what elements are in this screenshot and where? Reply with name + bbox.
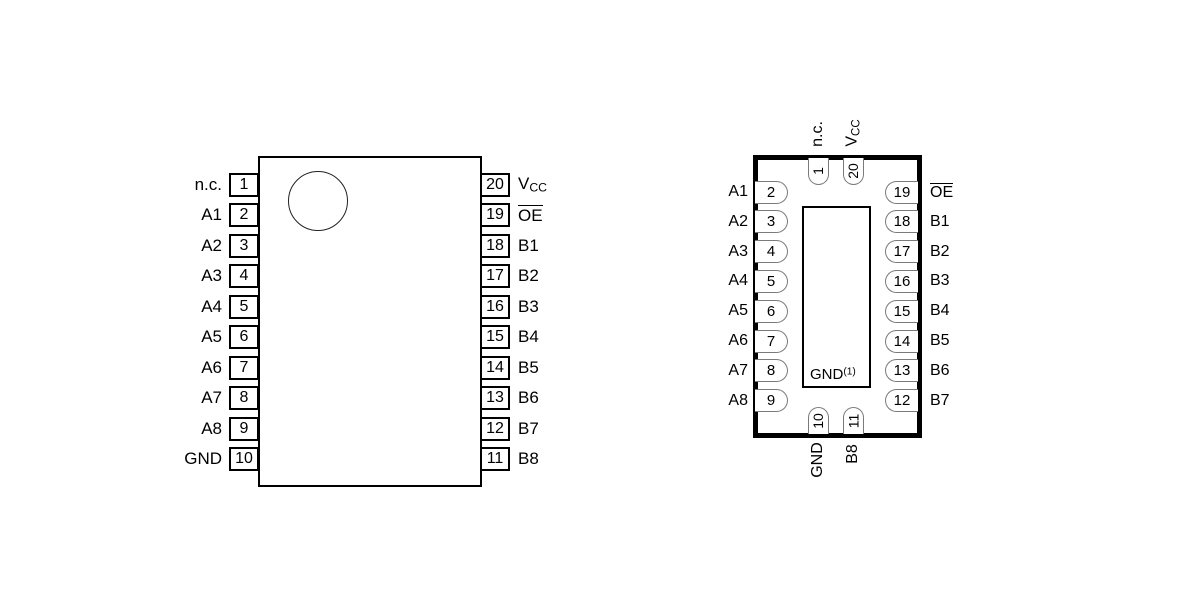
- pin-name-label: B6: [518, 386, 668, 410]
- pin-number-box: 5: [229, 295, 259, 319]
- pin-name-text: B4: [930, 302, 950, 320]
- pin-name-label: A8: [96, 417, 222, 441]
- pin-name-text: B8: [518, 449, 539, 469]
- pin-name-label: B5: [930, 329, 1030, 353]
- pin-number-box: 6: [229, 325, 259, 349]
- pin-number-box: 12: [480, 417, 510, 441]
- pin-name-label: B2: [518, 264, 668, 288]
- pin-number-box: 16: [480, 295, 510, 319]
- pin-number-box: 3: [229, 234, 259, 258]
- pin-name-text: GND: [809, 442, 826, 478]
- pin-name-text: GND(1): [810, 366, 856, 383]
- pin-name-text: A2: [201, 236, 222, 256]
- pin-name-label: B8: [518, 447, 668, 471]
- pin-name-label: OE: [518, 203, 668, 227]
- pin-name-label: A3: [96, 264, 222, 288]
- pin-name-text: A1: [728, 183, 748, 201]
- pin-number-box: 4: [229, 264, 259, 288]
- pin-name-text: A7: [201, 388, 222, 408]
- pin-stadium: 2: [755, 181, 788, 204]
- pin-number-box: 17: [480, 264, 510, 288]
- pin-name-label: B4: [930, 299, 1030, 323]
- pin-name-text: B5: [518, 358, 539, 378]
- pin-name-label: B4: [518, 325, 668, 349]
- pin-stadium: 17: [885, 240, 918, 263]
- pin-name-label: A5: [648, 299, 748, 323]
- pin-stadium: 10: [808, 407, 829, 434]
- pin-name-label: GND: [809, 442, 827, 478]
- pin-number-text: 10: [810, 413, 826, 429]
- pin-number-text: 20: [845, 163, 861, 179]
- pin-name-text: A2: [728, 213, 748, 231]
- pin-name-label: B6: [930, 359, 1030, 383]
- dip-package-body: [258, 156, 482, 487]
- pin-stadium: 15: [885, 300, 918, 323]
- pin-number-box: 18: [480, 234, 510, 258]
- pin-name-label: n.c.: [809, 121, 827, 147]
- pin-name-text: A5: [201, 327, 222, 347]
- pin-name-label: A7: [96, 386, 222, 410]
- pin-name-label: A8: [648, 389, 748, 413]
- pin-name-text: B6: [930, 362, 950, 380]
- pin-stadium: 7: [755, 330, 788, 353]
- pin-name-text: A3: [201, 266, 222, 286]
- pin-stadium: 9: [755, 389, 788, 412]
- pin-stadium: 4: [755, 240, 788, 263]
- pin-stadium: 8: [755, 359, 788, 382]
- pin-number-text: 1: [810, 167, 826, 175]
- pin-number-box: 8: [229, 386, 259, 410]
- pin-stadium: 5: [755, 270, 788, 293]
- pin-number-box: 20: [480, 173, 510, 197]
- pin-name-label: A6: [96, 356, 222, 380]
- pin-number-box: 13: [480, 386, 510, 410]
- pin-name-label: A6: [648, 329, 748, 353]
- pin-name-text: B3: [518, 297, 539, 317]
- pin-name-label: n.c.: [96, 173, 222, 197]
- pin-name-label: A1: [648, 180, 748, 204]
- pin-stadium: 14: [885, 330, 918, 353]
- pin-number-box: 10: [229, 447, 259, 471]
- pin-name-label: B1: [518, 234, 668, 258]
- pin-name-text: A7: [728, 362, 748, 380]
- pin-name-text: OE: [518, 205, 543, 226]
- pin-name-label: VCC: [844, 119, 863, 146]
- pin-name-text: B1: [930, 213, 950, 231]
- pin-name-text: VCC: [518, 174, 547, 195]
- pin-name-text: A8: [728, 392, 748, 410]
- pin-name-label: OE: [930, 180, 1030, 204]
- pin-name-label: B5: [518, 356, 668, 380]
- pin-number-box: 7: [229, 356, 259, 380]
- exposed-pad-label: GND(1): [810, 366, 856, 383]
- pin-stadium: 20: [843, 158, 864, 185]
- pin-name-text: B4: [518, 327, 539, 347]
- pin-name-label: B3: [518, 295, 668, 319]
- pin-name-text: A5: [728, 302, 748, 320]
- exposed-pad: GND(1): [802, 206, 871, 388]
- pin-name-text: B7: [518, 419, 539, 439]
- pin-name-label: A4: [648, 269, 748, 293]
- pin-number-box: 19: [480, 203, 510, 227]
- pin-stadium: 12: [885, 389, 918, 412]
- pin-name-label: A4: [96, 295, 222, 319]
- pin-name-text: B6: [518, 388, 539, 408]
- pin-stadium: 19: [885, 181, 918, 204]
- pin-number-box: 2: [229, 203, 259, 227]
- pin-name-label: A3: [648, 240, 748, 264]
- pin-number-box: 11: [480, 447, 510, 471]
- pin-name-text: A1: [201, 205, 222, 225]
- pin-name-label: B8: [844, 444, 862, 464]
- pin-stadium: 18: [885, 210, 918, 233]
- pin-name-text: n.c.: [195, 175, 222, 195]
- pin-name-text: A6: [201, 358, 222, 378]
- pin-name-label: GND: [96, 447, 222, 471]
- pin-name-text: B3: [930, 272, 950, 290]
- pin-name-text: A8: [201, 419, 222, 439]
- pin-name-label: A2: [96, 234, 222, 258]
- pin-name-text: A6: [728, 332, 748, 350]
- pin-name-text: OE: [930, 183, 953, 202]
- pin-name-text: A4: [728, 272, 748, 290]
- pin-name-label: A1: [96, 203, 222, 227]
- pin-name-text: VCC: [844, 119, 861, 146]
- pin-name-text: GND: [184, 449, 222, 469]
- pin-name-text: B7: [930, 392, 950, 410]
- pin-number-box: 15: [480, 325, 510, 349]
- pin-name-label: A7: [648, 359, 748, 383]
- pin-number-box: 9: [229, 417, 259, 441]
- pin-stadium: 3: [755, 210, 788, 233]
- pin-stadium: 13: [885, 359, 918, 382]
- pin-stadium: 6: [755, 300, 788, 323]
- pin-name-text: A4: [201, 297, 222, 317]
- pinout-figure: n.c.1A12A23A34A45A56A67A78A89GND1020VCC1…: [0, 0, 1179, 603]
- pin-name-text: B5: [930, 332, 950, 350]
- pin-name-label: B1: [930, 210, 1030, 234]
- pin1-indicator-circle: [288, 171, 348, 231]
- pin-stadium: 11: [843, 407, 864, 434]
- pin-name-text: B8: [844, 444, 861, 464]
- pin-name-label: B3: [930, 269, 1030, 293]
- pin-stadium: 1: [808, 158, 829, 185]
- pin-name-label: A2: [648, 210, 748, 234]
- pin-stadium: 16: [885, 270, 918, 293]
- pin-name-text: B1: [518, 236, 539, 256]
- pin-name-label: A5: [96, 325, 222, 349]
- pin-number-box: 14: [480, 356, 510, 380]
- pin-name-label: VCC: [518, 173, 668, 197]
- pin-name-label: B7: [518, 417, 668, 441]
- pin-name-text: B2: [518, 266, 539, 286]
- pin-name-text: n.c.: [809, 121, 826, 147]
- pin-name-label: B2: [930, 240, 1030, 264]
- pin-name-label: B7: [930, 389, 1030, 413]
- pin-number-text: 11: [845, 414, 861, 429]
- pin-name-text: A3: [728, 243, 748, 261]
- pin-name-text: B2: [930, 243, 950, 261]
- pin-number-box: 1: [229, 173, 259, 197]
